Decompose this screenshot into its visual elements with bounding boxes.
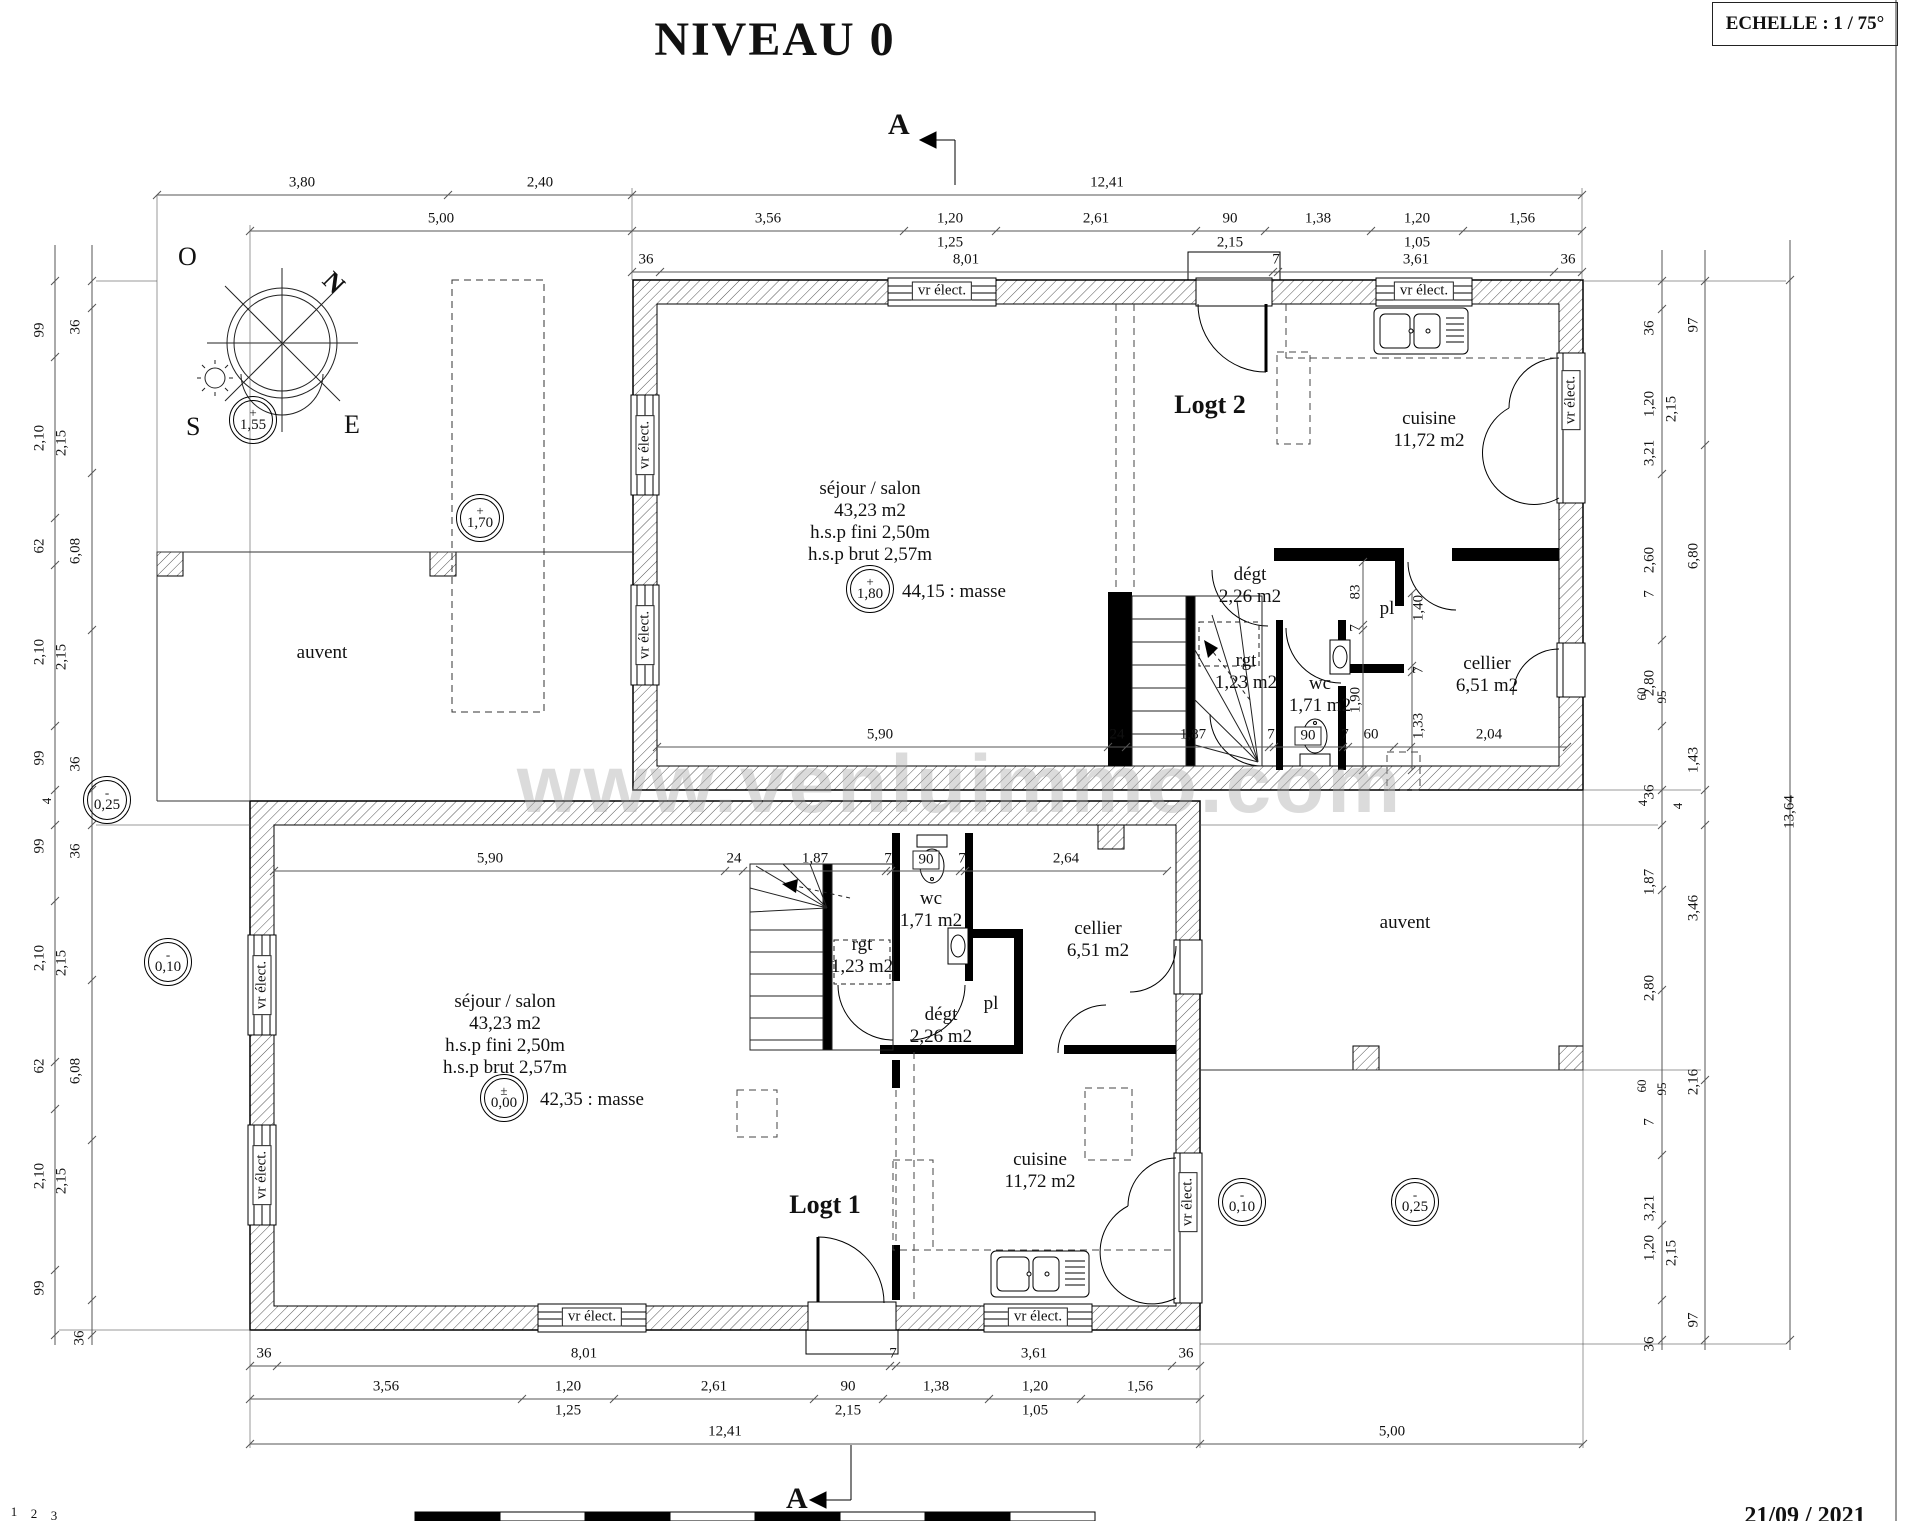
vr-elect-label: vr élect. bbox=[1394, 282, 1454, 301]
level-value: +1,70 bbox=[460, 498, 500, 538]
kitchen-sink-logt1 bbox=[991, 1251, 1089, 1297]
dim-label: 2,15 bbox=[54, 644, 71, 670]
compass-south-label: S bbox=[186, 412, 200, 442]
dim-label: 90 bbox=[1295, 727, 1322, 746]
dim-label: 2,40 bbox=[527, 175, 553, 192]
dim-label: 90 bbox=[913, 851, 940, 870]
level-value: ±0,00 bbox=[484, 1078, 524, 1118]
level-value: -0,10 bbox=[148, 942, 188, 982]
floor-plan-sheet: NIVEAU 0 ECHELLE : 1 / 75° www.venluimmo… bbox=[0, 0, 1920, 1521]
room-area: 1,23 m2 bbox=[1196, 672, 1296, 694]
dim-label: 1,05 bbox=[1404, 235, 1430, 252]
room-name: dégt bbox=[1185, 564, 1315, 586]
dim-label: 2,80 bbox=[1642, 975, 1659, 1001]
dim-label: 2,15 bbox=[54, 430, 71, 456]
dim-label: 36 bbox=[68, 757, 85, 772]
level-value: -0,25 bbox=[1395, 1182, 1435, 1222]
dim-label: 13,64 bbox=[1782, 795, 1799, 829]
dim-label: 12,41 bbox=[1090, 175, 1124, 192]
scale-box: ECHELLE : 1 / 75° bbox=[1712, 2, 1898, 46]
dim-label: 36 bbox=[1642, 1337, 1659, 1352]
dim-label: 12,41 bbox=[708, 1424, 742, 1441]
dim-label: 2,15 bbox=[54, 950, 71, 976]
ceiling-height-finished: h.s.p fini 2,50m bbox=[750, 522, 990, 544]
dim-label: 62 bbox=[32, 539, 49, 554]
vr-elect-label: vr élect. bbox=[912, 282, 972, 301]
dim-label: 2,16 bbox=[1686, 1069, 1703, 1095]
dim-label: 6,80 bbox=[1686, 543, 1703, 569]
dim-label: 36 bbox=[68, 320, 85, 335]
dim-label: 36 bbox=[639, 252, 654, 269]
dim-label: 6,08 bbox=[68, 538, 85, 564]
level-value: -0,10 bbox=[1222, 1182, 1262, 1222]
dim-label: 1,20 bbox=[1642, 1235, 1659, 1261]
room-name: cuisine bbox=[1349, 408, 1509, 430]
dim-label: 99 bbox=[32, 751, 49, 766]
dim-label: 97 bbox=[1686, 1313, 1703, 1328]
level-marker: -0,25 bbox=[1391, 1178, 1439, 1226]
dim-label: 95 bbox=[1654, 1083, 1670, 1096]
dim-label: 24 bbox=[727, 851, 742, 868]
dim-label: 7 bbox=[1411, 666, 1428, 674]
dim-label: 99 bbox=[32, 839, 49, 854]
level-value: +1,80 bbox=[850, 569, 890, 609]
page-mark: 2 bbox=[31, 1506, 38, 1521]
dim-label: 36 bbox=[1642, 785, 1659, 800]
dim-label: 8,01 bbox=[571, 1346, 597, 1363]
room-pl-logt1: pl bbox=[971, 993, 1011, 1015]
dim-label: 3,80 bbox=[289, 175, 315, 192]
dim-label: 99 bbox=[32, 1281, 49, 1296]
dim-label: 2,64 bbox=[1053, 851, 1079, 868]
dim-label: 36 bbox=[1561, 252, 1576, 269]
dim-label: 36 bbox=[257, 1346, 272, 1363]
dim-label: 2,10 bbox=[32, 639, 49, 665]
room-area: 11,72 m2 bbox=[960, 1171, 1120, 1193]
dim-label: 4 bbox=[1670, 803, 1686, 810]
room-name: rgt bbox=[1196, 650, 1296, 672]
level-marker: +1,70 bbox=[456, 494, 504, 542]
auvent-label-right: auvent bbox=[1345, 912, 1465, 934]
dim-label: 3,46 bbox=[1686, 895, 1703, 921]
vr-elect-label: vr élect. bbox=[1179, 1172, 1198, 1232]
compass-east-label: E bbox=[344, 410, 360, 440]
dim-label: 1,33 bbox=[1411, 713, 1428, 739]
dim-label: 36 bbox=[1642, 321, 1659, 336]
room-area: 43,23 m2 bbox=[750, 500, 990, 522]
dim-label: 1,20 bbox=[1022, 1379, 1048, 1396]
level-marker: -0,10 bbox=[144, 938, 192, 986]
room-cellier-logt2: cellier 6,51 m2 bbox=[1407, 653, 1567, 697]
dim-label: 1,20 bbox=[937, 211, 963, 228]
dim-label: 7 bbox=[1642, 590, 1659, 598]
dim-label: 7 bbox=[884, 851, 892, 868]
dim-label: 7 bbox=[1272, 252, 1280, 269]
ceiling-height-finished: h.s.p fini 2,50m bbox=[385, 1035, 625, 1057]
dim-label: 5,00 bbox=[428, 211, 454, 228]
dim-label: 36 bbox=[72, 1331, 89, 1346]
section-marker-top: A bbox=[888, 108, 910, 142]
dim-label: 1,90 bbox=[1348, 687, 1365, 713]
dim-label: 2,10 bbox=[32, 425, 49, 451]
dim-label: 8,01 bbox=[953, 252, 979, 269]
level-marker: ±0,00 bbox=[480, 1074, 528, 1122]
dim-label: 2,10 bbox=[32, 945, 49, 971]
washbasin-logt2 bbox=[1330, 640, 1350, 674]
room-area: 43,23 m2 bbox=[385, 1013, 625, 1035]
page-mark: 3 bbox=[51, 1508, 58, 1521]
dim-label: 5,90 bbox=[867, 727, 893, 744]
room-area: 2,26 m2 bbox=[876, 1026, 1006, 1048]
dim-label: 6,08 bbox=[68, 1058, 85, 1084]
dim-label: 7 bbox=[1348, 624, 1365, 632]
dim-label: 36 bbox=[68, 844, 85, 859]
level-value: -0,25 bbox=[87, 780, 127, 820]
room-name: rgt bbox=[812, 934, 912, 956]
room-name: séjour / salon bbox=[385, 991, 625, 1013]
dim-label: 60 bbox=[1364, 727, 1379, 744]
dim-label: 99 bbox=[32, 323, 49, 338]
dim-label: 5,00 bbox=[1379, 1424, 1405, 1441]
plan-drawing bbox=[0, 0, 1920, 1521]
dim-label: 97 bbox=[1686, 318, 1703, 333]
dim-label: 3,61 bbox=[1021, 1346, 1047, 1363]
dim-label: 2,04 bbox=[1476, 727, 1502, 744]
dim-label: 3,21 bbox=[1642, 1195, 1659, 1221]
dim-label: 5,90 bbox=[477, 851, 503, 868]
dim-label: 2,15 bbox=[835, 1403, 861, 1420]
room-area: 6,51 m2 bbox=[1407, 675, 1567, 697]
masse-label-logt1: 42,35 : masse bbox=[540, 1089, 670, 1111]
compass-west-label: O bbox=[178, 242, 197, 272]
room-cuisine-logt2: cuisine 11,72 m2 bbox=[1349, 408, 1509, 452]
washbasin-logt1 bbox=[948, 928, 968, 964]
dim-label: 3,21 bbox=[1642, 440, 1659, 466]
kitchen-sink-logt2 bbox=[1374, 308, 1468, 354]
room-name: cellier bbox=[1407, 653, 1567, 675]
room-rgt-logt1: rgt 1,23 m2 bbox=[812, 934, 912, 978]
masse-label-logt2: 44,15 : masse bbox=[902, 581, 1032, 603]
dim-label: 2,15 bbox=[54, 1168, 71, 1194]
room-area: 1,71 m2 bbox=[881, 910, 981, 932]
dim-label: 90 bbox=[1223, 211, 1238, 228]
dim-label: 2,61 bbox=[1083, 211, 1109, 228]
room-name: cellier bbox=[1018, 918, 1178, 940]
room-pl-logt2: pl bbox=[1367, 598, 1407, 620]
room-name: cuisine bbox=[960, 1149, 1120, 1171]
room-degt-logt2: dégt 2,26 m2 bbox=[1185, 564, 1315, 608]
dim-label: 60 bbox=[1634, 1080, 1650, 1093]
room-area: 6,51 m2 bbox=[1018, 940, 1178, 962]
room-sejour-logt2: séjour / salon 43,23 m2 h.s.p fini 2,50m… bbox=[750, 478, 990, 566]
dim-label: 95 bbox=[1654, 691, 1670, 704]
vr-elect-label: vr élect. bbox=[562, 1308, 622, 1327]
dim-label: 1,20 bbox=[1642, 391, 1659, 417]
dim-label: 2,15 bbox=[1664, 396, 1681, 422]
ceiling-height-raw: h.s.p brut 2,57m bbox=[750, 544, 990, 566]
apartment-label-logt2: Logt 2 bbox=[1145, 394, 1275, 416]
vr-elect-label: vr élect. bbox=[1562, 370, 1581, 430]
page-title: NIVEAU 0 bbox=[575, 12, 975, 67]
dim-label: 62 bbox=[32, 1059, 49, 1074]
dim-label: 1,43 bbox=[1686, 747, 1703, 773]
room-cellier-logt1: cellier 6,51 m2 bbox=[1018, 918, 1178, 962]
dim-label: 1,20 bbox=[555, 1379, 581, 1396]
dim-label: 24 bbox=[1110, 727, 1125, 744]
dim-label: 90 bbox=[841, 1379, 856, 1396]
level-marker: -0,10 bbox=[1218, 1178, 1266, 1226]
room-rgt-logt2: rgt 1,23 m2 bbox=[1196, 650, 1296, 694]
level-marker: +1,55 bbox=[229, 396, 277, 444]
dim-label: 1,38 bbox=[1305, 211, 1331, 228]
room-cuisine-logt1: cuisine 11,72 m2 bbox=[960, 1149, 1120, 1193]
room-name: wc bbox=[881, 888, 981, 910]
dim-label: 7 bbox=[889, 1346, 897, 1363]
scale-bar bbox=[415, 1512, 1095, 1521]
level-marker: +1,80 bbox=[846, 565, 894, 613]
dim-label: 4 bbox=[39, 798, 55, 805]
dim-label: 1,40 bbox=[1411, 595, 1428, 621]
level-value: +1,55 bbox=[233, 400, 273, 440]
dim-label: 1,87 bbox=[802, 851, 828, 868]
dim-label: 2,61 bbox=[701, 1379, 727, 1396]
dim-label: 1,20 bbox=[1404, 211, 1430, 228]
date-stamp: 21/09 / 2021 bbox=[1700, 1503, 1910, 1521]
room-area: 2,26 m2 bbox=[1185, 586, 1315, 608]
room-wc-logt1: wc 1,71 m2 bbox=[881, 888, 981, 932]
dim-label: 4 bbox=[1635, 800, 1651, 807]
dim-label: 1,25 bbox=[555, 1403, 581, 1420]
dim-label: 3,61 bbox=[1403, 252, 1429, 269]
dim-label: 36 bbox=[1179, 1346, 1194, 1363]
dim-label: 7 bbox=[1267, 727, 1275, 744]
dim-label: 7 bbox=[1341, 727, 1349, 744]
dim-label: 1,05 bbox=[1022, 1403, 1048, 1420]
dim-label: 1,87 bbox=[1642, 869, 1659, 895]
auvent-label-left: auvent bbox=[262, 642, 382, 664]
room-sejour-logt1: séjour / salon 43,23 m2 h.s.p fini 2,50m… bbox=[385, 991, 625, 1079]
dim-label: 60 bbox=[1634, 688, 1650, 701]
dim-label: 2,60 bbox=[1642, 547, 1659, 573]
apartment-label-logt1: Logt 1 bbox=[760, 1194, 890, 1216]
vr-elect-label: vr élect. bbox=[1008, 1308, 1068, 1327]
dim-label: 1,87 bbox=[1180, 727, 1206, 744]
dim-label: 3,56 bbox=[755, 211, 781, 228]
dim-label: 2,15 bbox=[1217, 235, 1243, 252]
room-area: 1,23 m2 bbox=[812, 956, 912, 978]
dim-label: 1,56 bbox=[1509, 211, 1535, 228]
dim-label: 2,15 bbox=[1664, 1240, 1681, 1266]
vr-elect-label: vr élect. bbox=[253, 955, 272, 1015]
dim-label: 2,10 bbox=[32, 1163, 49, 1189]
page-mark: 1 bbox=[11, 1504, 18, 1520]
dim-label: 3,56 bbox=[373, 1379, 399, 1396]
dim-label: 1,56 bbox=[1127, 1379, 1153, 1396]
section-marker-bottom: A bbox=[786, 1482, 808, 1516]
dim-label: 1,38 bbox=[923, 1379, 949, 1396]
level-marker: -0,25 bbox=[83, 776, 131, 824]
vr-elect-label: vr élect. bbox=[636, 415, 655, 475]
dim-label: 7 bbox=[958, 851, 966, 868]
room-area: 11,72 m2 bbox=[1349, 430, 1509, 452]
dim-label: 7 bbox=[1642, 1118, 1659, 1126]
vr-elect-label: vr élect. bbox=[253, 1145, 272, 1205]
vr-elect-label: vr élect. bbox=[636, 605, 655, 665]
dim-label: 83 bbox=[1348, 585, 1365, 600]
room-name: séjour / salon bbox=[750, 478, 990, 500]
dim-label: 1,25 bbox=[937, 235, 963, 252]
